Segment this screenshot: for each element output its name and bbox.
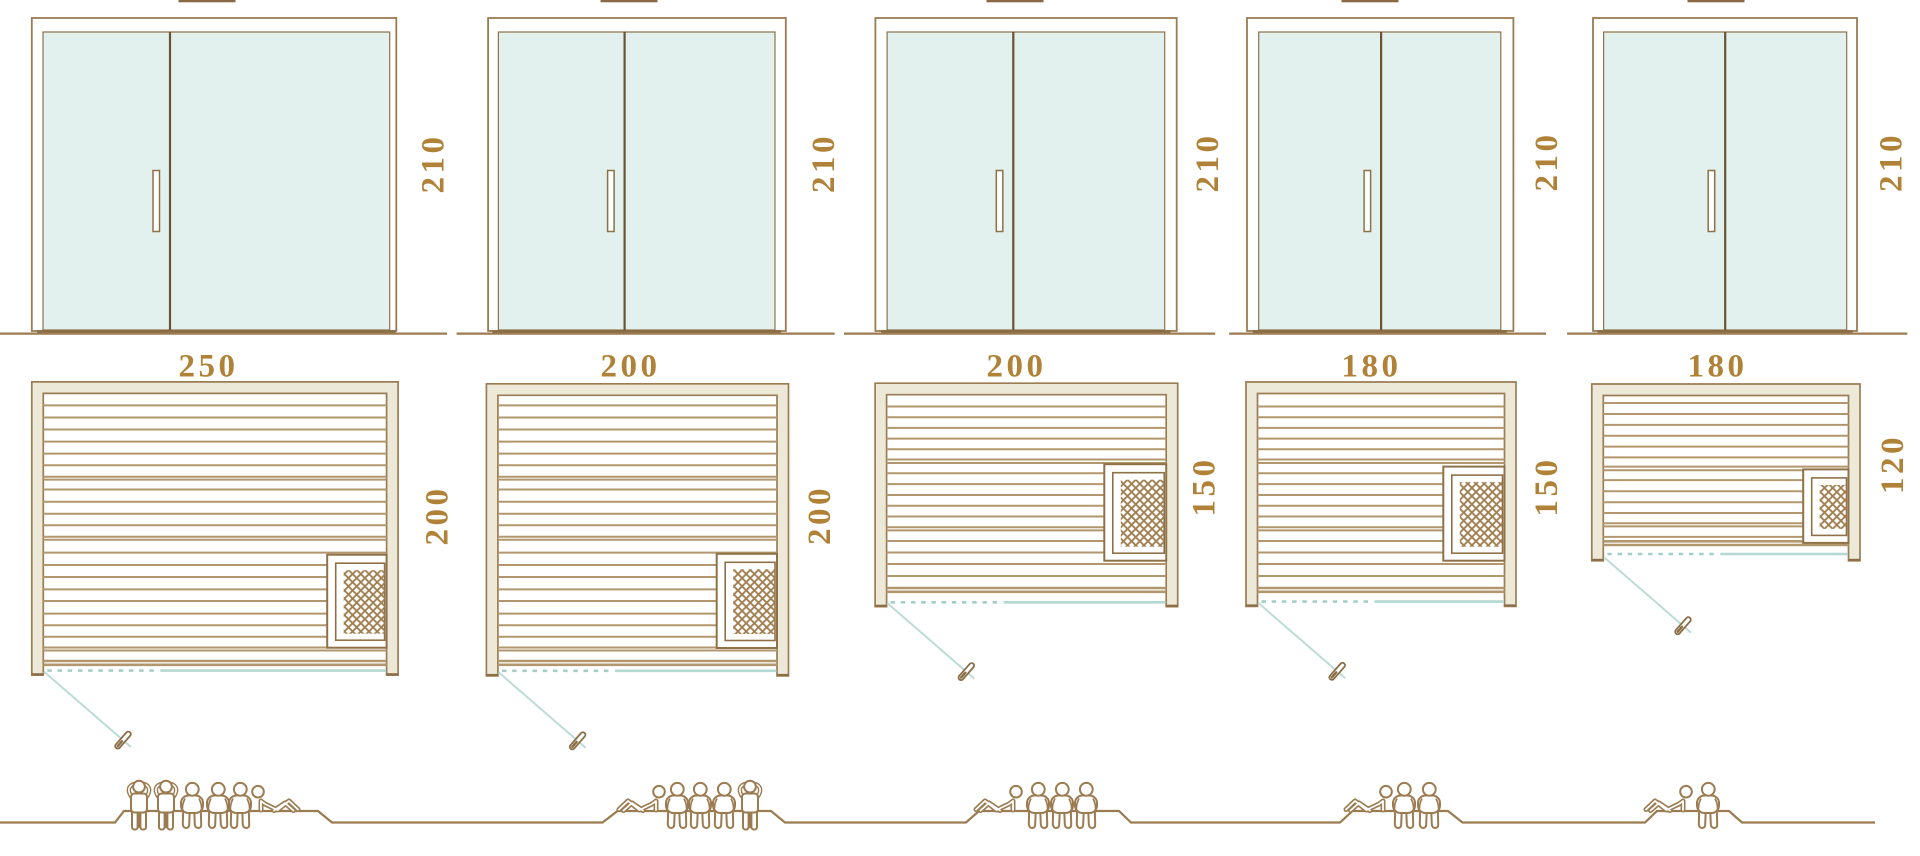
svg-text:210: 210 (1874, 132, 1910, 192)
svg-text:200: 200 (419, 486, 455, 546)
svg-text:200: 200 (987, 349, 1047, 385)
svg-text:210: 210 (1529, 132, 1565, 192)
svg-text:210: 210 (1190, 133, 1226, 193)
svg-text:180: 180 (1342, 349, 1402, 385)
svg-text:200: 200 (601, 349, 661, 385)
svg-text:210: 210 (806, 133, 842, 193)
svg-text:180: 180 (1688, 349, 1748, 385)
svg-text:150: 150 (1529, 457, 1565, 517)
svg-text:120: 120 (1875, 434, 1911, 494)
svg-text:200: 200 (802, 485, 838, 545)
svg-text:210: 210 (416, 134, 452, 194)
svg-text:250: 250 (179, 349, 239, 385)
svg-text:150: 150 (1187, 457, 1223, 517)
